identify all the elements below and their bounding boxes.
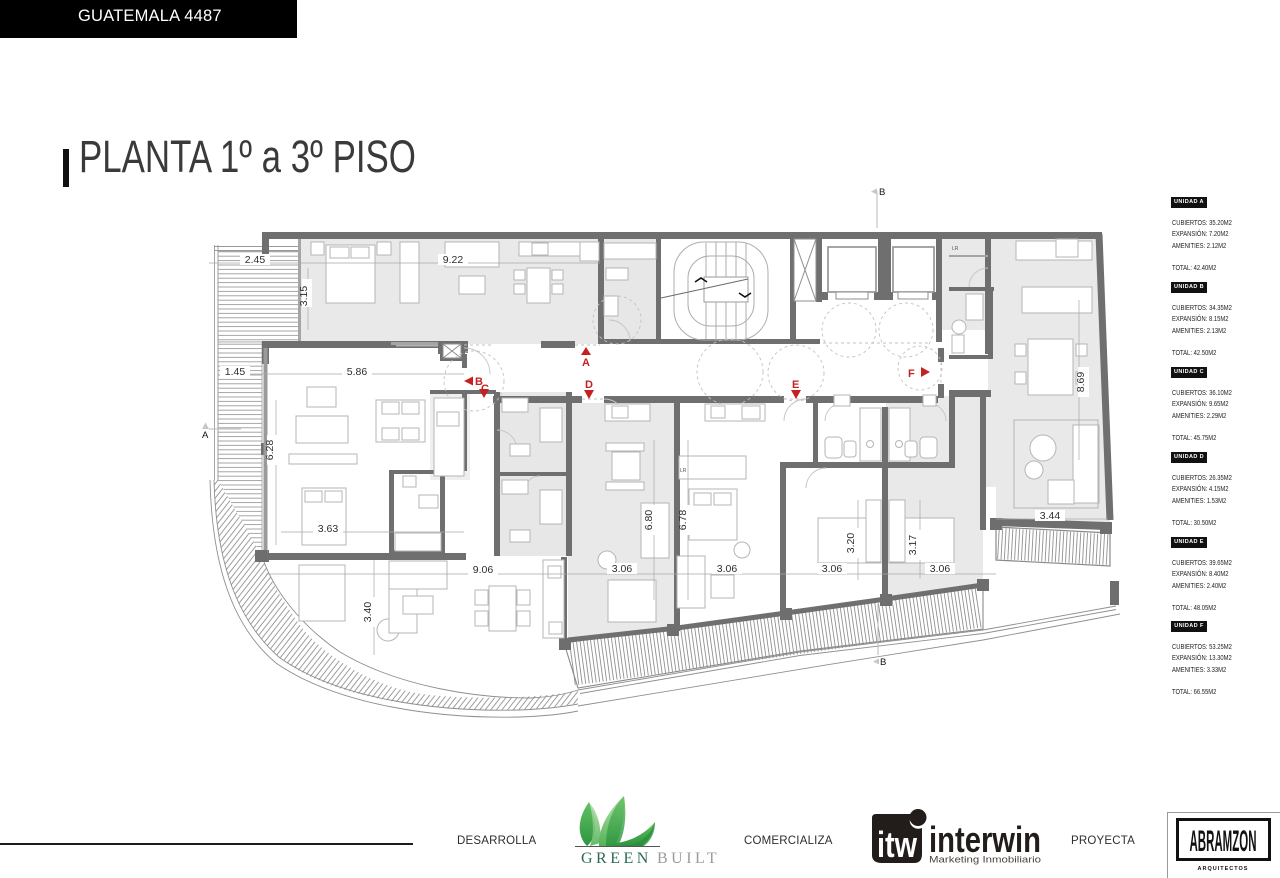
svg-text:6.80: 6.80 [643, 510, 655, 531]
svg-text:E: E [792, 379, 799, 391]
svg-text:Marketing Inmobiliario: Marketing Inmobiliario [929, 855, 1041, 866]
svg-text:2.45: 2.45 [245, 254, 266, 266]
svg-text:LR: LR [952, 246, 959, 252]
svg-text:GREEN: GREEN [581, 850, 652, 867]
svg-text:3.06: 3.06 [717, 563, 738, 575]
svg-text:3.40: 3.40 [362, 602, 374, 623]
svg-text:3.63: 3.63 [318, 523, 339, 535]
svg-text:itw: itw [877, 824, 918, 865]
svg-text:3.06: 3.06 [612, 563, 633, 575]
svg-text:5.86: 5.86 [347, 366, 368, 378]
svg-text:F: F [908, 368, 915, 380]
svg-text:3.06: 3.06 [822, 563, 843, 575]
svg-text:8.69: 8.69 [1075, 372, 1087, 393]
svg-text:6.78: 6.78 [677, 510, 689, 531]
svg-text:3.17: 3.17 [907, 535, 919, 556]
svg-text:9.22: 9.22 [443, 254, 464, 266]
svg-text:3.15: 3.15 [298, 286, 310, 307]
svg-text:BUILT: BUILT [657, 850, 720, 867]
svg-text:B: B [880, 657, 886, 668]
svg-text:LR: LR [680, 468, 687, 474]
svg-text:3.20: 3.20 [845, 533, 857, 554]
svg-text:6.28: 6.28 [264, 440, 276, 461]
svg-text:3.06: 3.06 [930, 563, 951, 575]
svg-text:3.44: 3.44 [1040, 510, 1061, 522]
svg-text:ABRAMZON: ABRAMZON [1190, 825, 1257, 858]
svg-text:1.45: 1.45 [225, 366, 246, 378]
svg-text:B: B [879, 187, 885, 198]
svg-text:A: A [582, 357, 590, 369]
svg-text:D: D [585, 379, 593, 391]
svg-text:ARQUITECTOS: ARQUITECTOS [1198, 866, 1249, 872]
svg-text:A: A [202, 430, 209, 441]
svg-text:9.06: 9.06 [473, 564, 494, 576]
